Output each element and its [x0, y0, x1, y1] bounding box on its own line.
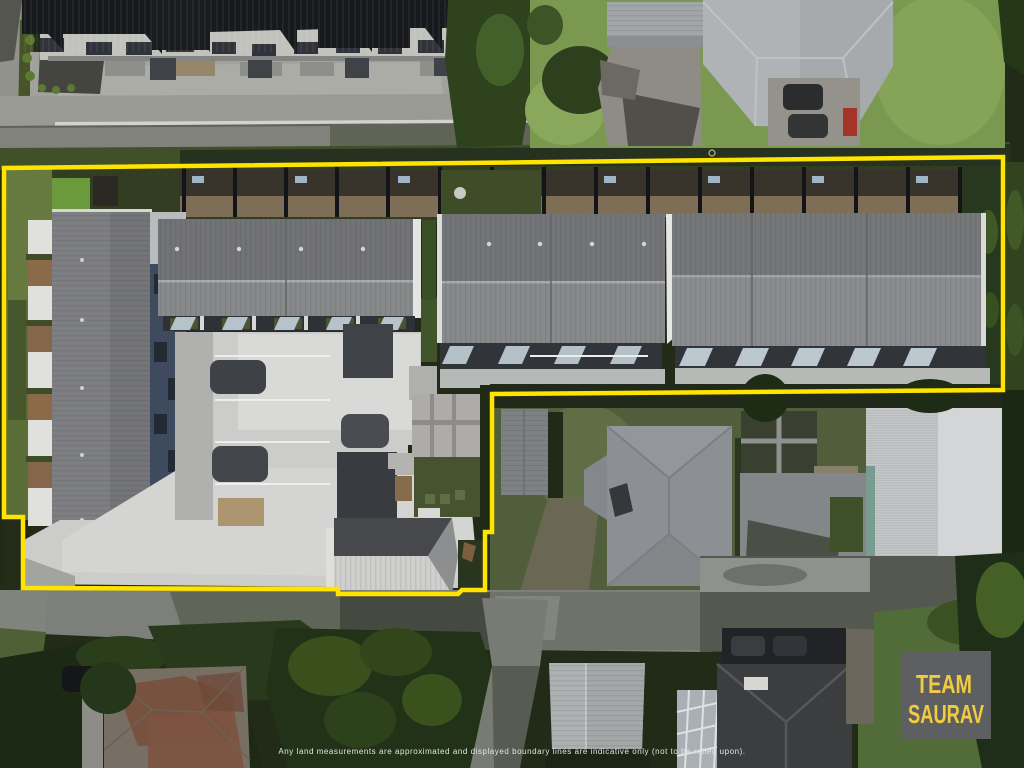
svg-text:Any land measurements are appr: Any land measurements are approximated a… — [278, 747, 745, 756]
svg-text:TEAM: TEAM — [916, 669, 972, 699]
svg-text:SAURAV: SAURAV — [908, 699, 984, 729]
